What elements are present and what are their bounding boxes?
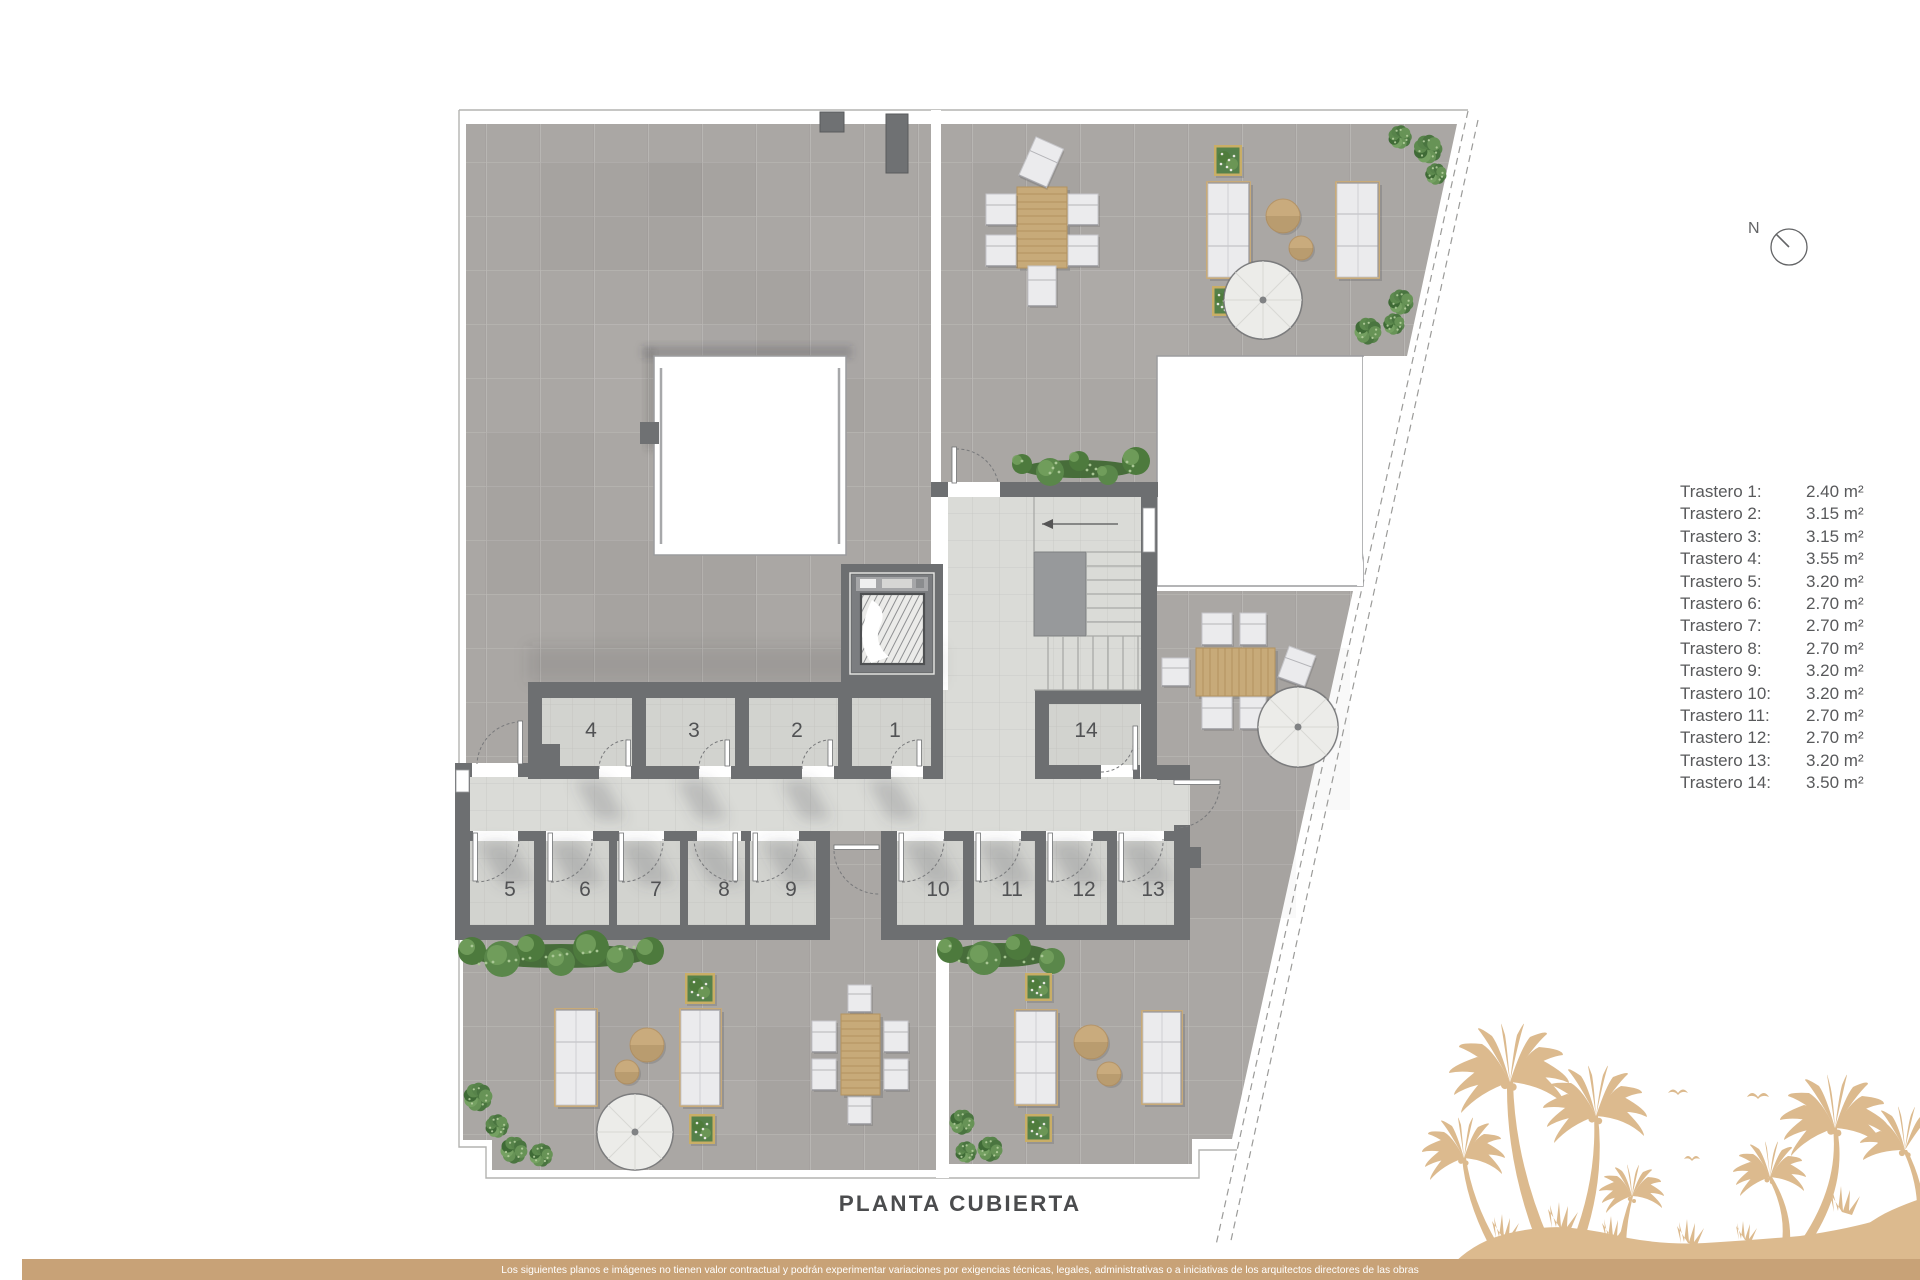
svg-text:14: 14 bbox=[1074, 719, 1098, 742]
svg-text:Trastero 3:: Trastero 3: bbox=[1680, 527, 1762, 546]
svg-text:Trastero 7:: Trastero 7: bbox=[1680, 616, 1762, 635]
svg-text:2.70 m²: 2.70 m² bbox=[1806, 616, 1864, 635]
svg-text:9: 9 bbox=[785, 878, 797, 901]
svg-text:3.20 m²: 3.20 m² bbox=[1806, 684, 1864, 703]
svg-text:2.70 m²: 2.70 m² bbox=[1806, 594, 1864, 613]
svg-text:6: 6 bbox=[579, 878, 591, 901]
svg-text:12: 12 bbox=[1072, 878, 1095, 901]
svg-text:2.70 m²: 2.70 m² bbox=[1806, 706, 1864, 725]
svg-text:2: 2 bbox=[791, 719, 803, 742]
svg-text:Trastero 14:: Trastero 14: bbox=[1680, 773, 1771, 792]
svg-text:Trastero 12:: Trastero 12: bbox=[1680, 728, 1771, 747]
svg-text:2.70 m²: 2.70 m² bbox=[1806, 728, 1864, 747]
svg-text:10: 10 bbox=[926, 878, 949, 901]
svg-text:3.50 m²: 3.50 m² bbox=[1806, 773, 1864, 792]
svg-text:Trastero 6:: Trastero 6: bbox=[1680, 594, 1762, 613]
svg-text:3.20 m²: 3.20 m² bbox=[1806, 661, 1864, 680]
svg-text:Trastero 2:: Trastero 2: bbox=[1680, 504, 1762, 523]
svg-text:3.20 m²: 3.20 m² bbox=[1806, 572, 1864, 591]
svg-text:Trastero 11:: Trastero 11: bbox=[1680, 706, 1770, 725]
svg-text:3: 3 bbox=[688, 719, 700, 742]
svg-text:PLANTA CUBIERTA: PLANTA CUBIERTA bbox=[839, 1191, 1082, 1216]
svg-text:13: 13 bbox=[1141, 878, 1164, 901]
svg-text:Trastero 8:: Trastero 8: bbox=[1680, 639, 1762, 658]
svg-text:7: 7 bbox=[650, 878, 662, 901]
svg-text:5: 5 bbox=[504, 878, 516, 901]
svg-text:Trastero 1:: Trastero 1: bbox=[1680, 482, 1762, 501]
svg-text:2.70 m²: 2.70 m² bbox=[1806, 639, 1864, 658]
svg-text:N: N bbox=[1748, 220, 1760, 237]
svg-text:1: 1 bbox=[889, 719, 901, 742]
svg-text:Trastero 5:: Trastero 5: bbox=[1680, 572, 1762, 591]
svg-text:8: 8 bbox=[718, 878, 730, 901]
svg-text:3.15 m²: 3.15 m² bbox=[1806, 504, 1864, 523]
svg-text:Trastero 10:: Trastero 10: bbox=[1680, 684, 1771, 703]
svg-text:Trastero 9:: Trastero 9: bbox=[1680, 661, 1762, 680]
svg-text:Trastero 4:: Trastero 4: bbox=[1680, 549, 1762, 568]
svg-text:3.55 m²: 3.55 m² bbox=[1806, 549, 1864, 568]
svg-text:3.20 m²: 3.20 m² bbox=[1806, 751, 1864, 770]
svg-text:2.40 m²: 2.40 m² bbox=[1806, 482, 1864, 501]
svg-text:3.15 m²: 3.15 m² bbox=[1806, 527, 1864, 546]
svg-text:Trastero 13:: Trastero 13: bbox=[1680, 751, 1771, 770]
svg-text:4: 4 bbox=[585, 719, 597, 742]
svg-text:11: 11 bbox=[1001, 878, 1023, 901]
svg-text:Los siguientes planos e imágen: Los siguientes planos e imágenes no tien… bbox=[501, 1265, 1419, 1276]
